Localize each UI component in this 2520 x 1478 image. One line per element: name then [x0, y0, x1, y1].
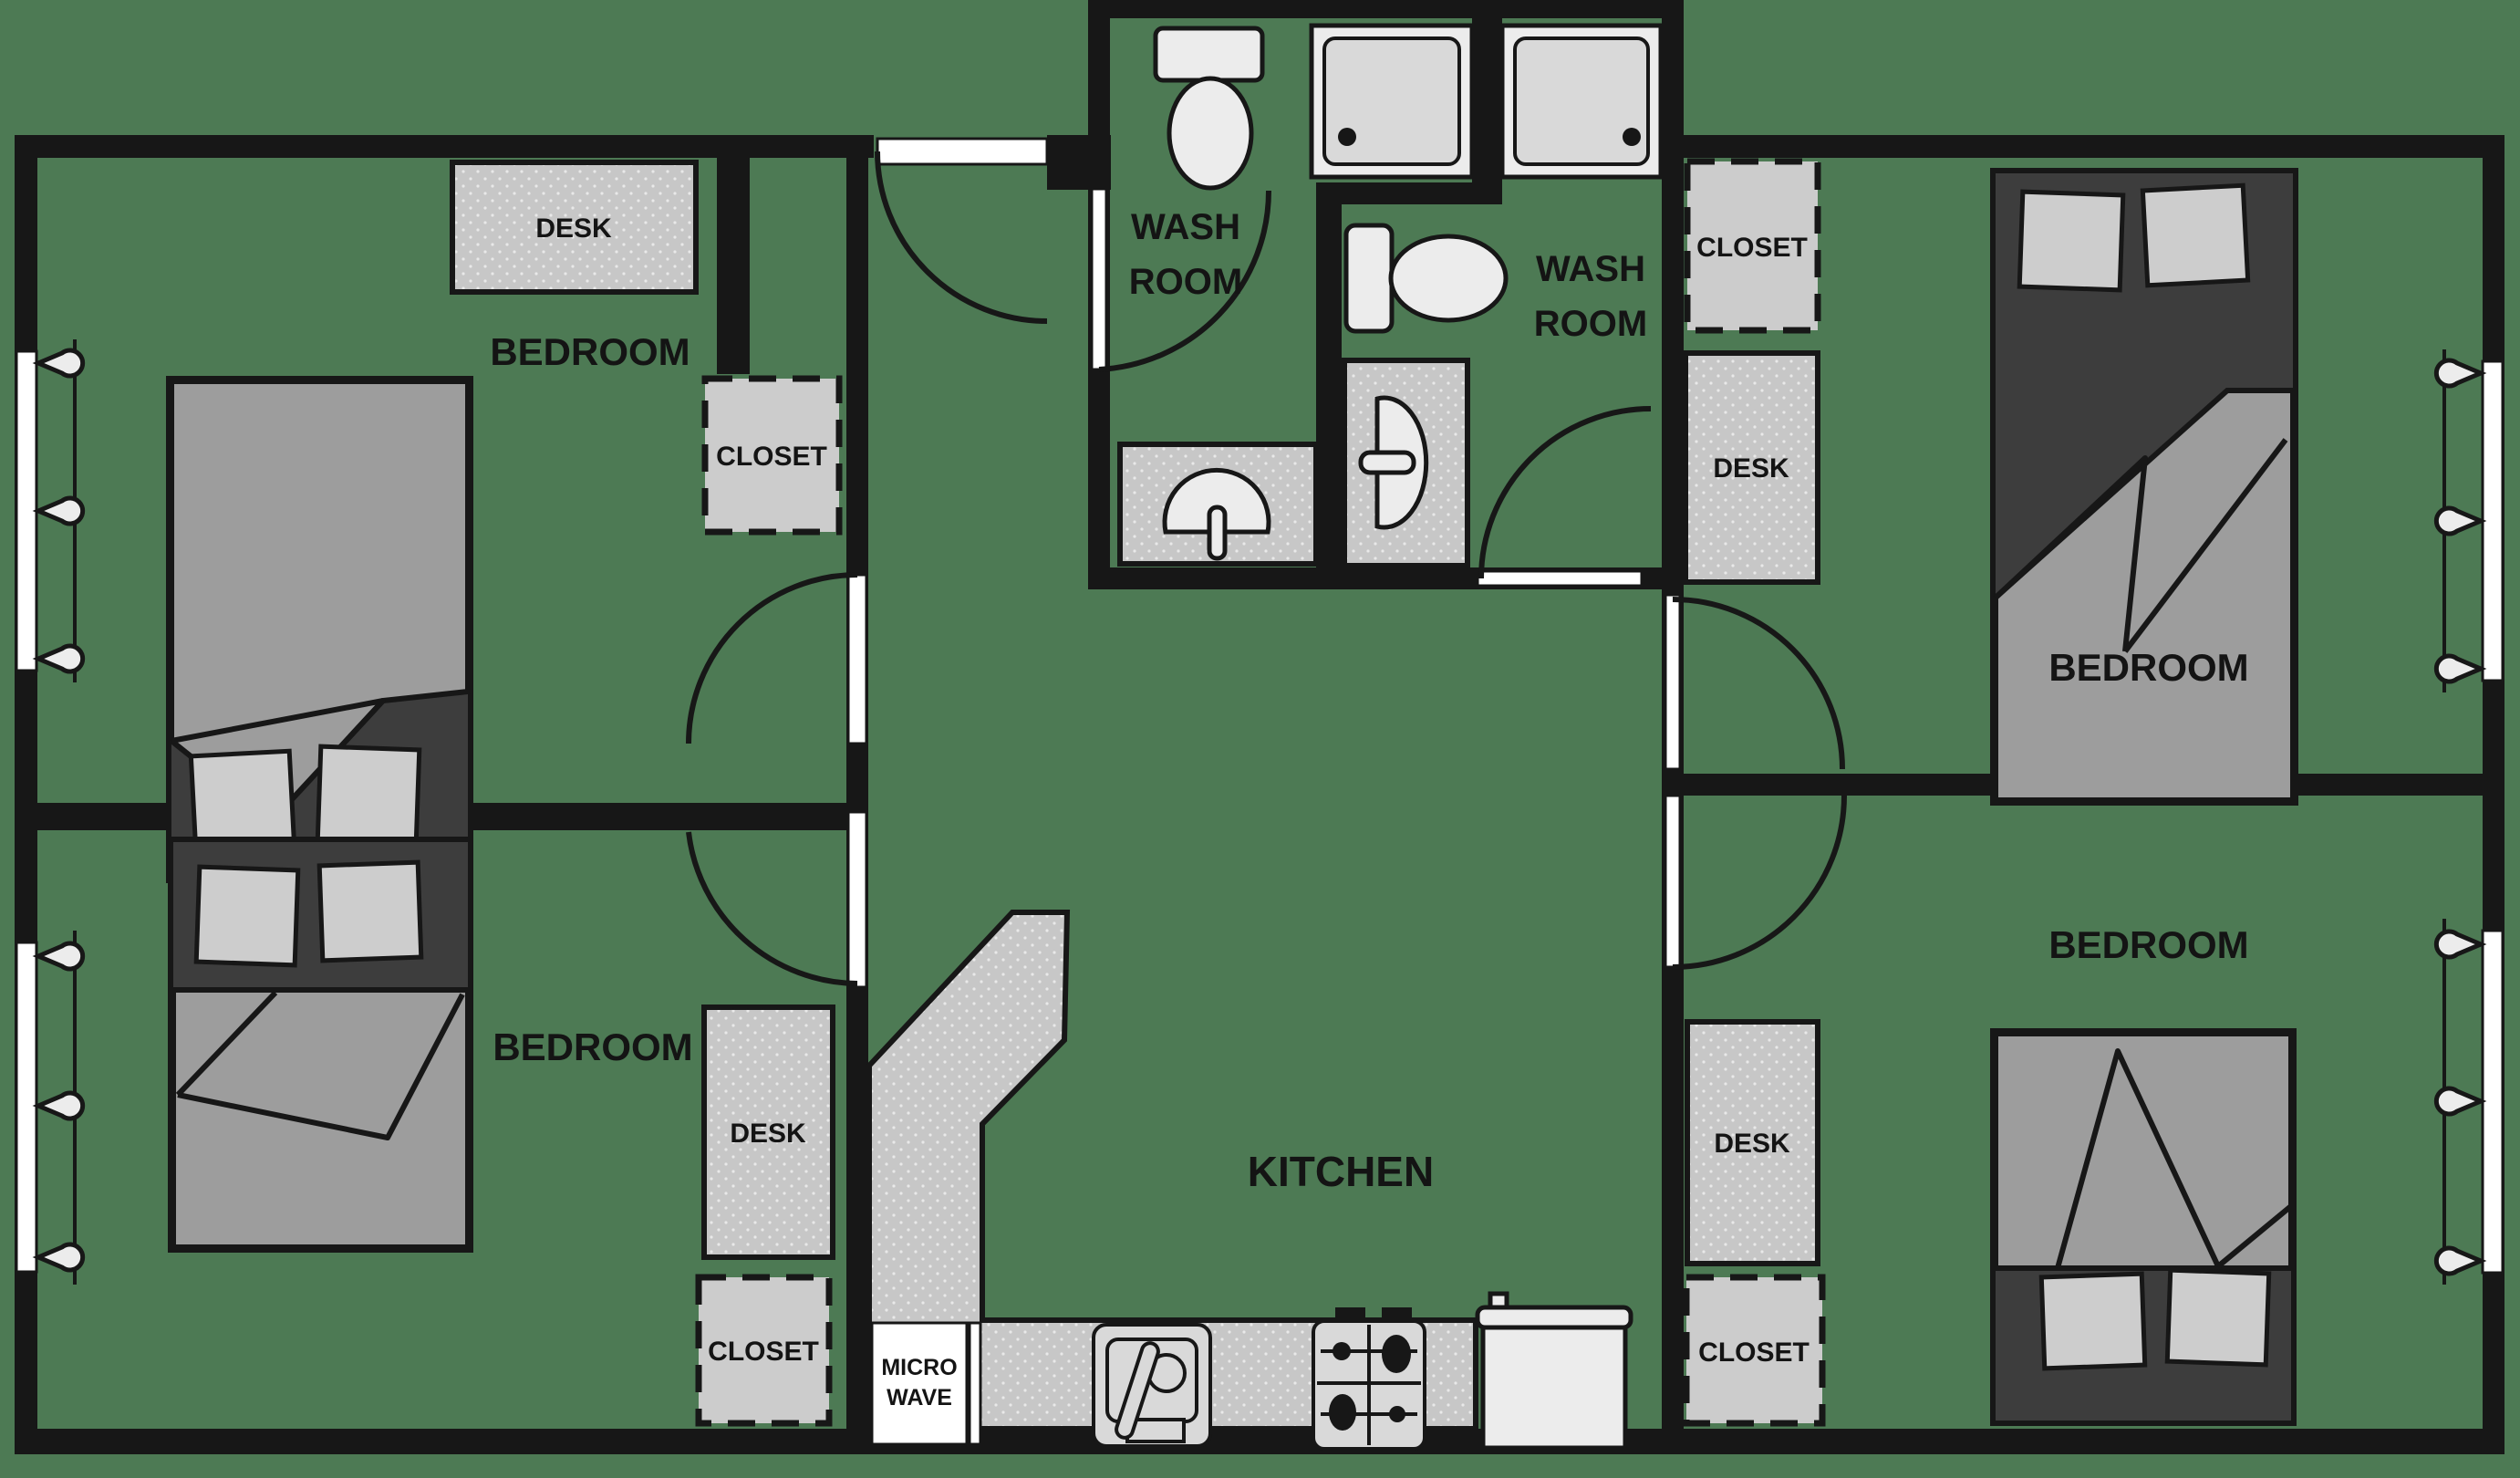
vanity-left	[1120, 444, 1316, 564]
wall-top-left	[15, 135, 874, 158]
floor-plan-canvas: BEDROOM BEDROOM BEDROOM BEDROOM KITCHEN …	[0, 0, 2520, 1478]
wall-hallway-left	[846, 135, 868, 1429]
bed-top-left	[169, 379, 471, 880]
toilet-tank	[1156, 28, 1262, 80]
window-bottom-right	[2436, 919, 2503, 1285]
bedroom-top-right-door	[1665, 595, 1842, 769]
bedroom-bottom-right-door	[1665, 796, 1844, 967]
curtain-hook-icon	[38, 498, 83, 524]
faucet-handle	[1361, 453, 1414, 473]
room-label-bedroom-bottom-left: BEDROOM	[493, 1025, 692, 1068]
bedroom-bottom-left-door	[689, 812, 866, 987]
door-slab	[877, 139, 1047, 164]
door-swing-arc	[1673, 796, 1844, 967]
curtain-hook-icon	[2436, 508, 2481, 534]
wall-top-right	[1684, 135, 2504, 158]
pillow	[2019, 192, 2123, 290]
curtain-hook-icon	[38, 646, 83, 671]
furniture-label-desk-bottom-right: DESK	[1714, 1129, 1790, 1159]
furniture-label-desk-bottom-left: DESK	[730, 1119, 806, 1149]
furniture-label-closet-top-right: CLOSET	[1696, 233, 1808, 263]
pillow	[317, 746, 420, 845]
room-label-bedroom-top-right: BEDROOM	[2048, 646, 2248, 689]
door-slab	[1092, 189, 1106, 369]
wall-stub-top-left-room	[717, 157, 750, 374]
bed-bottom-left	[171, 839, 471, 1250]
door-swing-arc	[1673, 599, 1842, 769]
pillow	[191, 751, 294, 851]
window-pane	[2483, 931, 2503, 1273]
wall-shower-divider	[1472, 18, 1502, 204]
toilet-tank	[1346, 225, 1392, 331]
wall-washroom-top	[1088, 0, 1684, 18]
bed-blanket	[173, 990, 468, 1247]
bed-bottom-right	[1993, 1031, 2294, 1423]
furniture-label-microwave-line2: WAVE	[887, 1385, 952, 1410]
furniture-label-closet-bottom-left: CLOSET	[708, 1337, 819, 1367]
pillow	[319, 862, 421, 961]
shower-left	[1312, 26, 1472, 177]
curtain-hook-icon	[2436, 1248, 2481, 1274]
curtain-hook-icon	[38, 943, 83, 969]
furniture-label-desk-top-right: DESK	[1713, 453, 1789, 484]
door-swing-arc	[1481, 409, 1651, 578]
shower-right	[1502, 26, 1661, 177]
stove-burner	[1382, 1335, 1411, 1373]
curtain-hook-icon	[38, 1244, 83, 1270]
curtain-hook-icon	[2436, 360, 2481, 386]
wall-washroom-divider	[1316, 182, 1342, 589]
microwave	[872, 1323, 980, 1444]
door-swing-arc	[689, 832, 857, 984]
door-slab	[1665, 796, 1680, 967]
room-label-washroom-left-line1: WASH	[1131, 207, 1240, 247]
kitchen-sink	[1094, 1325, 1210, 1446]
wall-bottom	[15, 1429, 2504, 1454]
door-swing-arc	[877, 151, 1047, 321]
pillow	[2041, 1274, 2144, 1369]
faucet-handle	[1209, 507, 1225, 558]
shower-drain-icon	[1623, 128, 1641, 146]
microwave-body	[872, 1323, 967, 1444]
stove	[1313, 1307, 1425, 1449]
pillow	[196, 867, 298, 965]
door-slab	[1478, 571, 1642, 586]
vanity-right	[1344, 360, 1467, 566]
fridge-body	[1483, 1327, 1625, 1448]
stove-burner	[1389, 1406, 1405, 1422]
shower-drain-icon	[1338, 128, 1356, 146]
curtain-hook-icon	[2436, 932, 2481, 957]
toilet-bowl	[1169, 78, 1251, 188]
fridge-lid	[1478, 1307, 1631, 1327]
bed-top-right	[1993, 171, 2296, 803]
furniture-label-closet-bottom-right: CLOSET	[1698, 1337, 1810, 1368]
stove-burner	[1333, 1342, 1351, 1360]
floor-plan: BEDROOM BEDROOM BEDROOM BEDROOM KITCHEN …	[0, 0, 2520, 1478]
pillow	[2167, 1270, 2268, 1365]
furniture-label-desk-top-left: DESK	[535, 213, 612, 244]
room-label-washroom-right-line2: ROOM	[1534, 304, 1647, 344]
door-swing-arc	[689, 575, 857, 744]
entry-door	[877, 139, 1047, 321]
door-slab	[848, 812, 866, 987]
toilet-bowl	[1391, 236, 1506, 320]
room-label-bedroom-bottom-right: BEDROOM	[2048, 923, 2248, 966]
shower-tray-inner	[1515, 38, 1648, 164]
window-bottom-left	[16, 931, 83, 1285]
stove-burner	[1329, 1394, 1356, 1431]
curtain-hook-icon	[2436, 1088, 2481, 1114]
curtain-hook-icon	[38, 350, 83, 376]
wall-washroom-stub	[1316, 182, 1502, 204]
room-label-washroom-left-line2: ROOM	[1129, 262, 1242, 302]
washroom-right-door	[1478, 409, 1651, 586]
window-top-left	[16, 339, 83, 682]
room-label-kitchen: KITCHEN	[1248, 1148, 1434, 1195]
bedroom-top-left-door	[689, 575, 866, 744]
window-top-right	[2436, 349, 2503, 692]
microwave-door	[970, 1323, 980, 1444]
window-pane	[16, 942, 36, 1272]
furniture-label-microwave-line1: MICRO	[881, 1355, 957, 1380]
door-slab	[1665, 595, 1680, 769]
curtain-hook-icon	[2436, 656, 2481, 682]
curtain-hook-icon	[38, 1093, 83, 1119]
room-label-washroom-right-line1: WASH	[1536, 249, 1645, 289]
refrigerator	[1478, 1294, 1631, 1448]
bed-blanket	[1996, 1034, 2291, 1268]
room-label-bedroom-top-left: BEDROOM	[490, 330, 690, 373]
furniture-label-closet-top-left: CLOSET	[716, 442, 827, 472]
pillow	[2142, 185, 2247, 286]
door-slab	[848, 575, 866, 744]
